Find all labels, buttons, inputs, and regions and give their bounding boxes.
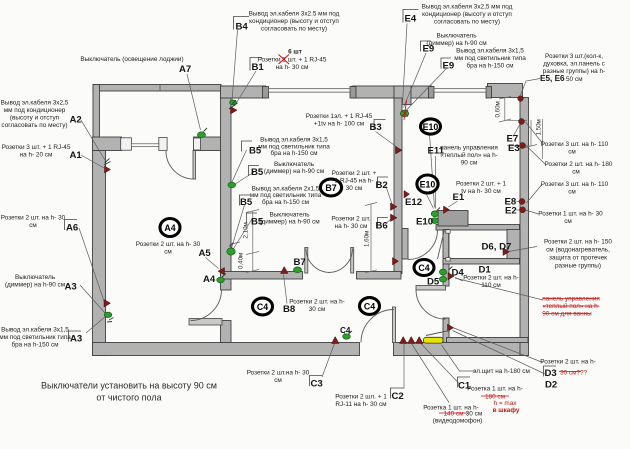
svg-text:B5: B5 xyxy=(249,146,262,157)
svg-text:защита от протечек: защита от протечек xyxy=(549,255,607,262)
svg-text:D5: D5 xyxy=(427,277,440,288)
svg-text:Розетки 2 шт. на h-: Розетки 2 шт. на h- xyxy=(289,299,345,306)
svg-text:A6: A6 xyxy=(66,223,78,234)
svg-text:0,40м: 0,40м xyxy=(238,253,245,269)
svg-text:E9: E9 xyxy=(443,61,455,72)
svg-text:1,50м: 1,50м xyxy=(536,119,543,135)
svg-text:см: см xyxy=(568,189,576,196)
svg-text:Розетка 1 шт. на h-: Розетка 1 шт. на h- xyxy=(467,386,523,393)
svg-text:(видеодомофон): (видеодомофон) xyxy=(433,418,483,425)
svg-text:Розетки 2 шт. +: Розетки 2 шт. + xyxy=(332,170,377,177)
svg-text:50 см: 50 см xyxy=(566,76,582,83)
svg-text:Выключатель: Выключатель xyxy=(15,274,56,281)
svg-text:Вывод эл.кабеля 3х1,5: Вывод эл.кабеля 3х1,5 xyxy=(456,47,524,55)
svg-text:Розетки 3 шт. на h- 110: Розетки 3 шт. на h- 110 xyxy=(541,141,609,148)
svg-text:E9: E9 xyxy=(423,44,435,55)
svg-text:E4: E4 xyxy=(405,14,417,25)
svg-text:см: см xyxy=(568,149,576,156)
svg-text:Розетки 3 шт. на h- 110: Розетки 3 шт. на h- 110 xyxy=(541,181,609,188)
svg-text:B8: B8 xyxy=(283,304,296,315)
svg-text:6 шт: 6 шт xyxy=(288,49,302,56)
svg-text:B5: B5 xyxy=(251,216,264,227)
svg-text:E2: E2 xyxy=(505,206,517,217)
svg-text:B6: B6 xyxy=(376,221,388,232)
svg-text:Розетки 3 шт. + 1 RJ-45: Розетки 3 шт. + 1 RJ-45 xyxy=(2,144,71,151)
svg-text:90 см: 90 см xyxy=(461,160,477,167)
svg-text:30 см: 30 см xyxy=(309,306,325,313)
svg-text:в шкафу: в шкафу xyxy=(493,407,520,414)
svg-text:+1tv на h- 100 см: +1tv на h- 100 см xyxy=(314,121,364,128)
svg-text:C2: C2 xyxy=(392,391,404,402)
svg-text:бра на h-150 см: бра на h-150 см xyxy=(270,149,317,157)
svg-text:30 см: 30 см xyxy=(466,411,482,418)
svg-text:на h- 30 см: на h- 30 см xyxy=(276,64,309,71)
svg-text:Розетки 1 шт. на h- 30: Розетки 1 шт. на h- 30 xyxy=(538,211,603,218)
svg-text:мм под светильник типа: мм под светильник типа xyxy=(454,55,526,62)
svg-text:мм под кондиционер: мм под кондиционер xyxy=(4,107,66,114)
svg-text:Вывод эл.кабеля 3х1,5: Вывод эл.кабеля 3х1,5 xyxy=(260,136,328,144)
svg-text:Розетки 2 шт. + 1 RJ-45: Розетки 2 шт. + 1 RJ-45 xyxy=(258,57,327,64)
svg-text:(высоту и отступ: (высоту и отступ xyxy=(10,115,60,122)
svg-text:(диммер) на h-90 см: (диммер) на h-90 см xyxy=(5,282,65,289)
svg-text:бра на h-150 см: бра на h-150 см xyxy=(11,341,58,349)
svg-text:см (водонагреватель,: см (водонагреватель, xyxy=(546,247,610,254)
svg-text:B7: B7 xyxy=(325,183,336,193)
svg-text:Выключатель (освещение лоджии): Выключатель (освещение лоджии) xyxy=(80,56,183,63)
svg-text:C4: C4 xyxy=(364,302,375,312)
svg-text:(диммер) на h-90 см: (диммер) на h-90 см xyxy=(426,40,486,47)
svg-text:110 см: 110 см xyxy=(481,282,501,289)
svg-text:D3: D3 xyxy=(545,368,557,379)
svg-text:A3: A3 xyxy=(70,334,82,345)
svg-text:Вывод эл.кабеля 3х1,5: Вывод эл.кабеля 3х1,5 xyxy=(1,326,69,334)
svg-text:см: см xyxy=(29,222,37,229)
svg-text:B2: B2 xyxy=(376,180,388,191)
svg-text:B5: B5 xyxy=(240,197,253,208)
svg-text:E10: E10 xyxy=(416,217,433,228)
svg-text:согласовать по месту): согласовать по месту) xyxy=(261,26,327,33)
svg-text:духовка, эл.панель с: духовка, эл.панель с xyxy=(543,61,605,68)
svg-text:C4: C4 xyxy=(340,326,351,335)
svg-text:от чистого пола: от чистого пола xyxy=(96,393,161,403)
svg-text:E1: E1 xyxy=(453,192,465,203)
svg-text:D6, D7: D6, D7 xyxy=(482,242,512,253)
svg-text:B7: B7 xyxy=(294,257,306,268)
svg-text:C4: C4 xyxy=(418,263,429,273)
svg-text:E10: E10 xyxy=(423,122,439,132)
svg-text:A4: A4 xyxy=(164,223,175,233)
svg-text:B1: B1 xyxy=(252,62,265,73)
svg-text:Розетки 2 шт. на h-: Розетки 2 шт. на h- xyxy=(463,275,519,282)
svg-text:Розетки 2 шт.на h- 30: Розетки 2 шт.на h- 30 xyxy=(247,370,310,377)
svg-text:см: см xyxy=(164,248,172,255)
svg-text:см: см xyxy=(572,169,580,176)
svg-text:мм под светильник типа: мм под светильник типа xyxy=(0,334,71,341)
svg-text:кондиционер (высоту и отступ: кондиционер (высоту и отступ xyxy=(249,18,339,25)
svg-text:панель управления: панель управления xyxy=(440,145,498,152)
svg-text:Розетки 2 шт. + 1: Розетки 2 шт. + 1 xyxy=(456,181,506,188)
svg-text:1,60м: 1,60м xyxy=(364,231,371,247)
svg-text:30 см: 30 см xyxy=(346,185,362,192)
svg-text:Розетки 3 шт.(кол-к,: Розетки 3 шт.(кол-к, xyxy=(545,53,603,60)
svg-text:см: см xyxy=(274,377,282,384)
svg-text:C4: C4 xyxy=(257,302,268,312)
svg-text:h = max: h = max xyxy=(494,400,518,407)
svg-text:0,60м: 0,60м xyxy=(495,101,502,117)
svg-text:A1: A1 xyxy=(70,150,83,161)
svg-text:Розетки 2 шл. + 1: Розетки 2 шл. + 1 xyxy=(335,394,387,401)
svg-text:Вывод эл.кабеля 3х2.5 мм под: Вывод эл.кабеля 3х2.5 мм под xyxy=(249,10,340,18)
svg-text:(диммер) на h-90 см: (диммер) на h-90 см xyxy=(259,218,319,225)
svg-text:B5: B5 xyxy=(251,167,264,178)
svg-text:A7: A7 xyxy=(179,64,191,75)
svg-text:на h- 20 см: на h- 20 см xyxy=(20,152,53,159)
svg-text:Выключатель: Выключатель xyxy=(436,33,477,40)
svg-text:Розетки 2 шт.: Розетки 2 шт. xyxy=(331,216,370,223)
svg-text:бра на h-150 см: бра на h-150 см xyxy=(466,62,513,70)
svg-text:140 см: 140 см xyxy=(443,411,463,418)
svg-text:tv на h- 30 см: tv на h- 30 см xyxy=(461,188,501,195)
svg-text:E5, E6: E5, E6 xyxy=(540,74,565,83)
svg-text:Розетки 2 шт. на h-: Розетки 2 шт. на h- xyxy=(540,359,596,366)
svg-text:1 RJ-45 на h-: 1 RJ-45 на h- xyxy=(335,178,374,185)
svg-text:панель управления: панель управления xyxy=(542,296,600,303)
svg-text:Розетки 2 шт. на h- 30: Розетки 2 шт. на h- 30 xyxy=(136,241,201,248)
svg-text:кондиционер (высоту и отступ: кондиционер (высоту и отступ xyxy=(422,11,512,18)
svg-text:D2: D2 xyxy=(545,380,557,391)
svg-text:Розетки 1эл. + 1 RJ-45: Розетки 1эл. + 1 RJ-45 xyxy=(306,113,373,120)
svg-text:E3: E3 xyxy=(508,143,520,154)
svg-text:RJ-11 на h- 30 см: RJ-11 на h- 30 см xyxy=(335,401,386,408)
svg-text:Вывод эл.кабеля 3х2,5: Вывод эл.кабеля 3х2,5 xyxy=(1,99,69,107)
svg-text:бра на h-150 см: бра на h-150 см xyxy=(262,198,309,206)
svg-text:C3: C3 xyxy=(311,379,323,390)
svg-text:E12: E12 xyxy=(405,197,422,208)
svg-text:Вывод эл.кабеля 3х2,5 мм под: Вывод эл.кабеля 3х2,5 мм под xyxy=(422,3,513,11)
svg-text:«теплый пол» на h-: «теплый пол» на h- xyxy=(440,151,498,159)
svg-text:Розетки 2 шт. на h- 150: Розетки 2 шт. на h- 150 xyxy=(544,239,612,246)
svg-text:B3: B3 xyxy=(370,122,382,133)
svg-text:A5: A5 xyxy=(199,248,212,259)
svg-text:B4: B4 xyxy=(236,22,249,33)
svg-text:A4: A4 xyxy=(203,274,216,285)
svg-text:A2: A2 xyxy=(70,115,82,126)
svg-text:Выключатели установить на высо: Выключатели установить на высоту 90 см xyxy=(41,381,217,391)
svg-text:согласовать по месту): согласовать по месту) xyxy=(434,19,500,26)
svg-text:разные группы): разные группы) xyxy=(555,263,601,270)
svg-text:A3: A3 xyxy=(65,282,77,293)
svg-text:Розетки 2 шт. на h- 30: Розетки 2 шт. на h- 30 xyxy=(1,215,66,222)
svg-text:эл.щит на h-180 см: эл.щит на h-180 см xyxy=(473,368,530,375)
svg-text:на h- 30 см: на h- 30 см xyxy=(335,223,368,230)
svg-text:см: см xyxy=(564,218,572,225)
svg-text:согласовать по месту): согласовать по месту) xyxy=(1,122,67,129)
svg-text:30 см???: 30 см??? xyxy=(560,370,588,377)
svg-text:Розетки 2 шт. на h- 180: Розетки 2 шт. на h- 180 xyxy=(545,161,613,168)
svg-text:(диммер) на h-90 см: (диммер) на h-90 см xyxy=(264,168,324,175)
svg-text:E10: E10 xyxy=(420,180,436,190)
svg-text:90 см для ванны: 90 см для ванны xyxy=(542,311,592,318)
